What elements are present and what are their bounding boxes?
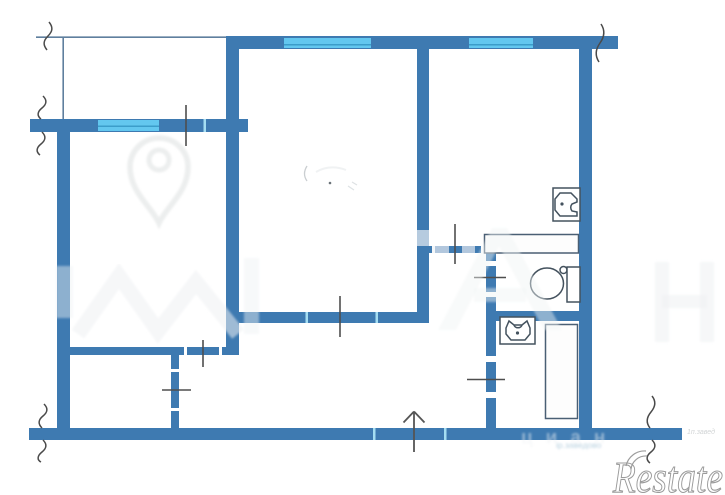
svg-text:1п.завед: 1п.завед <box>687 428 715 436</box>
svg-text:ip.заведово: ip.заведово <box>556 440 602 450</box>
svg-text:Restate: Restate <box>612 453 723 495</box>
